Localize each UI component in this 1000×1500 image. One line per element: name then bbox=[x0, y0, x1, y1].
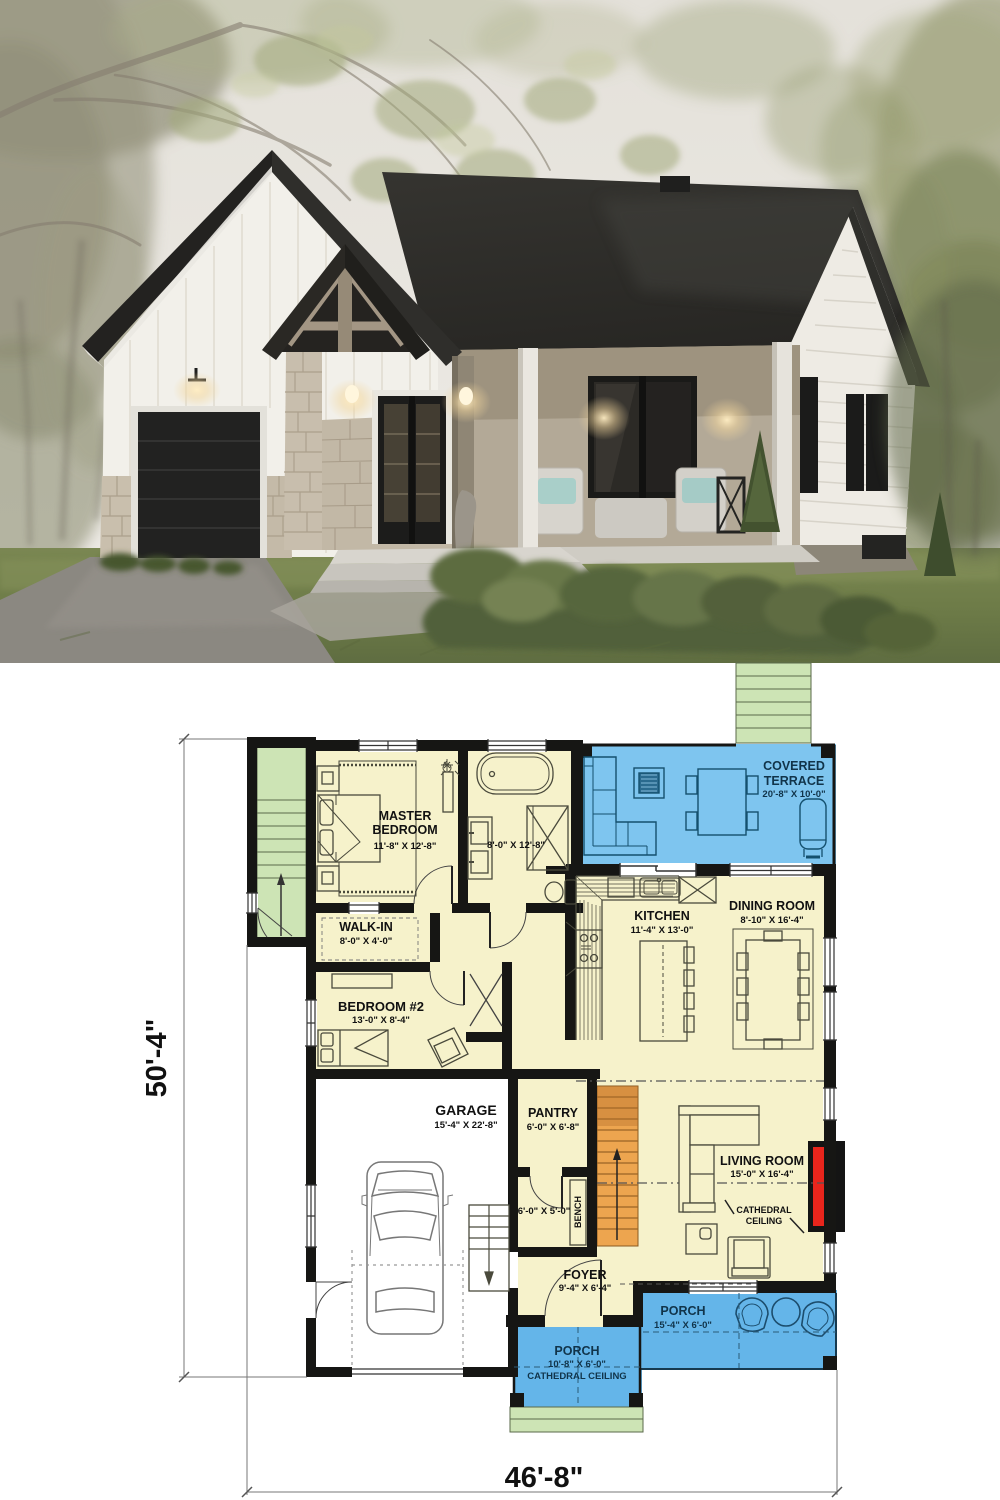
svg-text:11'-4" X 13'-0": 11'-4" X 13'-0" bbox=[631, 925, 694, 936]
svg-text:GARAGE: GARAGE bbox=[435, 1102, 496, 1118]
svg-text:9'-4" X 6'-4": 9'-4" X 6'-4" bbox=[559, 1283, 612, 1294]
svg-text:6'-0" X 5'-0": 6'-0" X 5'-0" bbox=[518, 1206, 571, 1217]
svg-text:8'-10" X 16'-4": 8'-10" X 16'-4" bbox=[740, 915, 803, 926]
svg-text:COVERED: COVERED bbox=[763, 759, 825, 773]
svg-text:BEDROOM #2: BEDROOM #2 bbox=[338, 999, 424, 1014]
svg-text:LIVING ROOM: LIVING ROOM bbox=[720, 1154, 804, 1168]
svg-text:6'-0" X 6'-8": 6'-0" X 6'-8" bbox=[527, 1122, 580, 1133]
svg-text:15'-4" X 6'-0": 15'-4" X 6'-0" bbox=[654, 1320, 712, 1331]
svg-text:KITCHEN: KITCHEN bbox=[634, 909, 690, 923]
svg-text:CEILING: CEILING bbox=[746, 1216, 783, 1226]
svg-text:10'-8" X 6'-0": 10'-8" X 6'-0" bbox=[548, 1359, 606, 1370]
svg-text:8'-0" X 12'-8": 8'-0" X 12'-8" bbox=[487, 840, 545, 851]
svg-text:BEDROOM: BEDROOM bbox=[372, 823, 437, 837]
svg-text:15'-0" X 16'-4": 15'-0" X 16'-4" bbox=[730, 1169, 793, 1180]
svg-text:CATHEDRAL CEILING: CATHEDRAL CEILING bbox=[527, 1371, 626, 1382]
svg-text:CATHEDRAL: CATHEDRAL bbox=[736, 1205, 792, 1215]
svg-text:15'-4" X 22'-8": 15'-4" X 22'-8" bbox=[434, 1120, 497, 1131]
svg-text:PORCH: PORCH bbox=[554, 1344, 599, 1358]
svg-text:13'-0" X 8'-4": 13'-0" X 8'-4" bbox=[352, 1015, 410, 1026]
svg-text:8'-0" X 4'-0": 8'-0" X 4'-0" bbox=[340, 936, 393, 947]
svg-text:MASTER: MASTER bbox=[379, 809, 432, 823]
svg-text:FOYER: FOYER bbox=[563, 1268, 606, 1282]
svg-text:PANTRY: PANTRY bbox=[528, 1106, 579, 1120]
svg-text:WALK-IN: WALK-IN bbox=[339, 920, 392, 934]
svg-text:11'-8" X 12'-8": 11'-8" X 12'-8" bbox=[374, 841, 437, 852]
svg-text:46'-8": 46'-8" bbox=[505, 1462, 584, 1494]
svg-text:DINING ROOM: DINING ROOM bbox=[729, 899, 815, 913]
svg-text:TERRACE: TERRACE bbox=[764, 774, 824, 788]
svg-text:BENCH: BENCH bbox=[573, 1196, 583, 1228]
svg-text:50'-4": 50'-4" bbox=[141, 1019, 173, 1098]
svg-text:PORCH: PORCH bbox=[660, 1304, 705, 1318]
svg-text:20'-8" X 10'-0": 20'-8" X 10'-0" bbox=[762, 789, 825, 800]
